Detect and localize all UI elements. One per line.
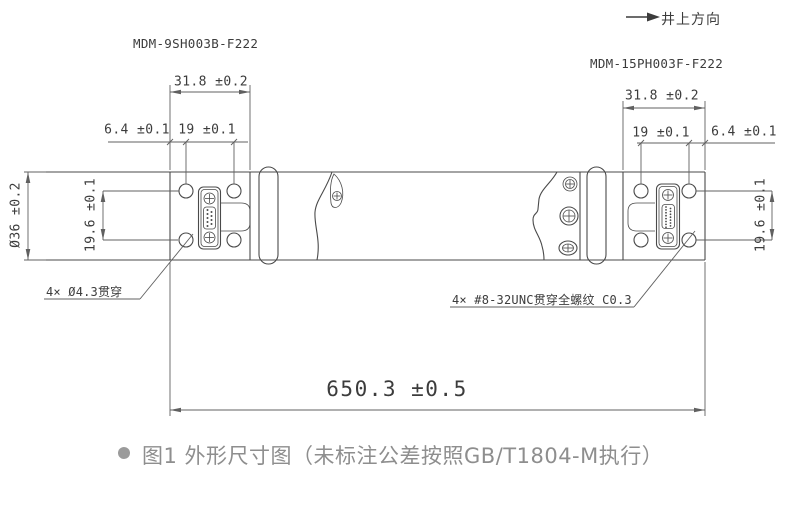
right-connector-model: MDM-15PH003F-F222: [590, 56, 723, 71]
uphole-arrow-icon: [626, 13, 660, 22]
connector-pins: [665, 206, 671, 228]
break-line-right: [533, 172, 578, 260]
dim-left-block-width: 31.8 ±0.2: [174, 75, 248, 90]
technical-drawing-page: 井上方向 MDM-9SH003B-F222 MDM-15PH003F-F222 …: [0, 0, 808, 511]
dim-body-diameter: Ø36 ±0.2: [9, 182, 24, 248]
dim-left-hole-offset: 6.4 ±0.1: [104, 123, 170, 138]
mounting-hole: [227, 233, 241, 247]
connector-pins: [207, 209, 213, 227]
collar-ring-right: [587, 167, 606, 264]
tool-body-outline: [40, 167, 705, 264]
mounting-hole: [179, 184, 193, 198]
right-dsub-connector: [657, 184, 680, 249]
mounting-hole: [227, 184, 241, 198]
screw-icon: [563, 177, 577, 191]
dim-left-hole-row-pitch: 19.6 ±0.1: [84, 178, 99, 252]
dim-right-hole-offset: 6.4 ±0.1: [711, 125, 777, 140]
connector-pocket: [628, 203, 655, 231]
collar-ring-left: [259, 167, 278, 264]
right-end-block: [628, 184, 696, 249]
left-connector-model: MDM-9SH003B-F222: [133, 36, 258, 51]
screw-icon: [559, 241, 577, 255]
callout-left-holes: 4× Ø4.3贯穿: [46, 283, 122, 300]
callout-right-holes: 4× #8-32UNC贯穿全螺纹 C0.3: [452, 291, 632, 308]
dim-right-hole-row-pitch: 19.6 ±0.1: [754, 178, 769, 252]
mounting-hole: [682, 184, 696, 198]
figure-caption: 图1 外形尺寸图（未标注公差按照GB/T1804-M执行）: [142, 440, 663, 470]
left-dsub-connector: [199, 187, 221, 249]
mounting-hole: [179, 233, 193, 247]
dim-right-hole-pitch: 19 ±0.1: [632, 126, 690, 141]
mounting-hole: [634, 233, 648, 247]
screw-icon: [560, 207, 578, 225]
dim-left-hole-pitch: 19 ±0.1: [178, 123, 236, 138]
mounting-hole: [634, 184, 648, 198]
uphole-direction-label: 井上方向: [661, 9, 721, 29]
dim-overall-length: 650.3 ±0.5: [326, 377, 467, 401]
dimension-drawing: [0, 0, 808, 511]
connector-pocket: [221, 203, 250, 231]
left-end-block: [179, 184, 250, 249]
dim-right-block-width: 31.8 ±0.2: [625, 89, 699, 104]
caption-bullet: [118, 447, 130, 459]
break-line-left: [315, 172, 343, 260]
